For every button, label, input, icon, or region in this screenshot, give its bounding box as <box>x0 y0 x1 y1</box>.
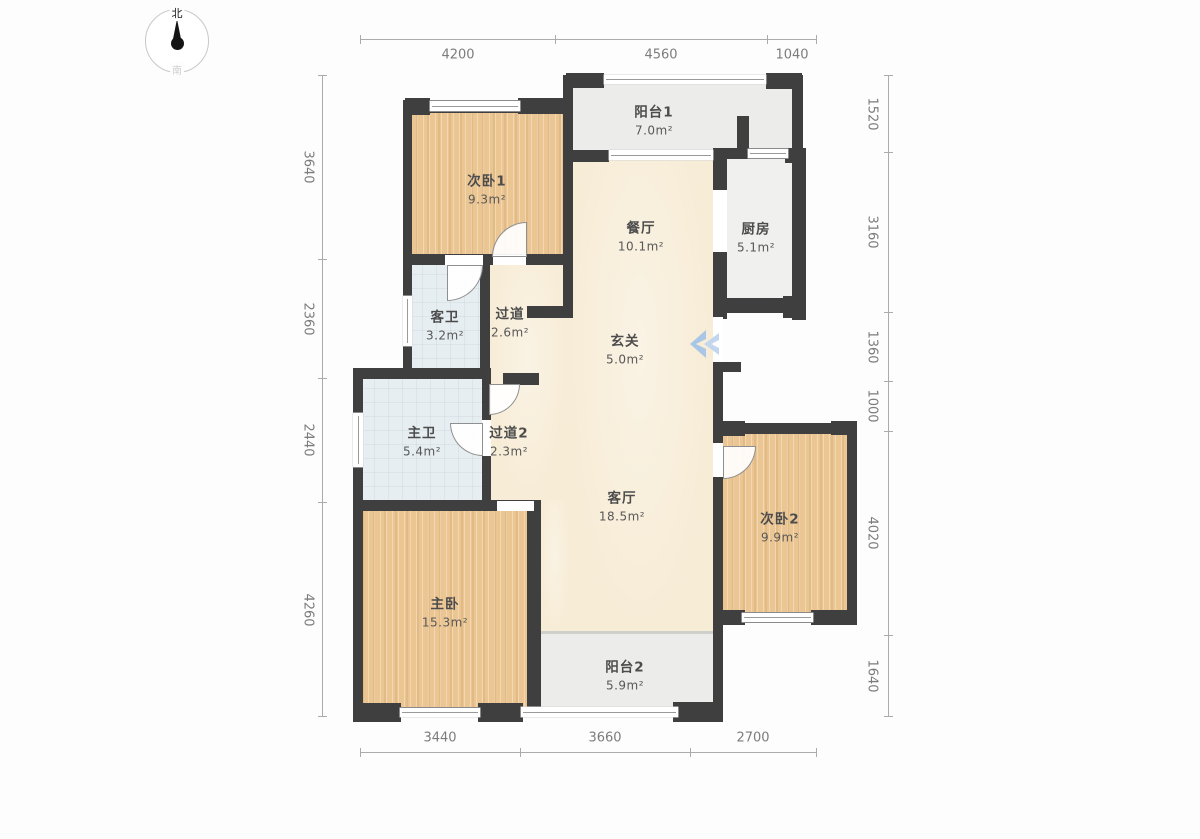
wall <box>563 150 609 162</box>
compass-north-label: 北 <box>170 5 185 21</box>
room-label-hallway1: 过道 2.6m² <box>491 303 529 340</box>
window-balcony1 <box>604 75 766 84</box>
dim-bottom-1: 3440 <box>423 731 456 746</box>
tick <box>767 35 768 44</box>
compass-south-label: 南 <box>170 62 184 77</box>
wall <box>811 610 857 625</box>
room-label-bedroom1: 次卧1 9.3m² <box>467 170 506 207</box>
room-label-balcony2: 阳台2 5.9m² <box>605 656 644 693</box>
tick <box>884 75 893 76</box>
dim-top-2: 4560 <box>644 48 677 63</box>
dim-left-4: 4260 <box>301 593 316 626</box>
opening-bedroom2 <box>713 443 723 477</box>
dim-right-3: 1360 <box>865 330 880 363</box>
room-label-guest-bath: 客卫 3.2m² <box>426 306 464 343</box>
room-living-edge-floor <box>540 500 570 635</box>
compass: 北 南 <box>142 6 212 76</box>
opening-master-bedroom <box>497 501 534 511</box>
window-guest-bath <box>403 296 412 346</box>
tick <box>884 381 893 382</box>
dim-left-2: 2360 <box>301 302 316 335</box>
tick <box>360 35 361 44</box>
tick <box>816 35 817 44</box>
window-bedroom2 <box>742 613 813 622</box>
room-label-balcony1: 阳台1 7.0m² <box>634 101 673 138</box>
room-label-bedroom2: 次卧2 9.9m² <box>760 508 799 545</box>
opening-kitchen <box>713 190 727 252</box>
wall <box>792 152 806 320</box>
tick <box>318 716 327 717</box>
tick <box>690 748 691 757</box>
tick <box>884 152 893 153</box>
wall <box>527 500 541 713</box>
wall <box>713 298 806 313</box>
dim-top-1: 4200 <box>441 48 474 63</box>
dimension-line-bottom <box>360 752 817 753</box>
dim-right-2: 3160 <box>865 215 880 248</box>
dim-right-6: 1640 <box>865 659 880 692</box>
floor-plan: 北 南 <box>0 0 1200 839</box>
floorplan-page: { "compass": { "north": "北", "south": "南… <box>0 0 1200 839</box>
opening-guest-bath <box>445 255 483 265</box>
window-balcony2-glazing <box>521 707 678 717</box>
dim-bottom-3: 2700 <box>736 731 769 746</box>
tick <box>318 378 327 379</box>
room-label-master-bath: 主卫 5.4m² <box>403 422 441 459</box>
window-bedroom1 <box>430 101 520 111</box>
room-balcony1-floor <box>566 80 802 152</box>
room-label-hallway2: 过道2 2.3m² <box>489 422 528 459</box>
room-label-kitchen: 厨房 5.1m² <box>737 218 775 255</box>
room-label-living: 客厅 18.5m² <box>599 487 645 524</box>
tick <box>884 716 893 717</box>
dim-left-3: 2440 <box>301 423 316 456</box>
wall <box>792 75 803 155</box>
entry-arrow-icon <box>684 328 722 364</box>
tick <box>816 748 817 757</box>
wall <box>353 368 491 379</box>
dim-left-1: 3640 <box>301 150 316 183</box>
dimension-line-right <box>888 75 889 717</box>
wall <box>737 116 749 152</box>
wall <box>713 362 723 423</box>
wall <box>847 423 857 623</box>
window-master-bedroom <box>400 708 480 717</box>
window-balcony1-slider <box>609 150 713 160</box>
wall <box>518 98 570 114</box>
dimension-line-top <box>360 39 817 40</box>
tick <box>318 75 327 76</box>
balcony2-divider-line <box>538 631 715 634</box>
tick <box>884 431 893 432</box>
dimension-line-left <box>322 75 323 717</box>
wall <box>713 610 745 625</box>
room-label-master-bedroom: 主卧 15.3m² <box>422 593 468 630</box>
window-kitchen <box>748 149 788 158</box>
dim-bottom-2: 3660 <box>588 731 621 746</box>
dim-right-1: 1520 <box>865 97 880 130</box>
wall <box>527 306 573 318</box>
tick <box>318 259 327 260</box>
wall <box>478 703 523 722</box>
tick <box>884 312 893 313</box>
dim-right-5: 4020 <box>865 516 880 549</box>
dim-top-3: 1040 <box>775 48 808 63</box>
compass-hub-icon <box>171 37 184 50</box>
room-label-dining: 餐厅 10.1m² <box>618 217 664 254</box>
window-master-bath <box>353 413 363 467</box>
room-label-foyer: 玄关 5.0m² <box>606 330 644 367</box>
dim-right-4: 1000 <box>865 389 880 422</box>
tick <box>555 35 556 44</box>
tick <box>520 748 521 757</box>
tick <box>884 635 893 636</box>
tick <box>318 502 327 503</box>
tick <box>360 748 361 757</box>
